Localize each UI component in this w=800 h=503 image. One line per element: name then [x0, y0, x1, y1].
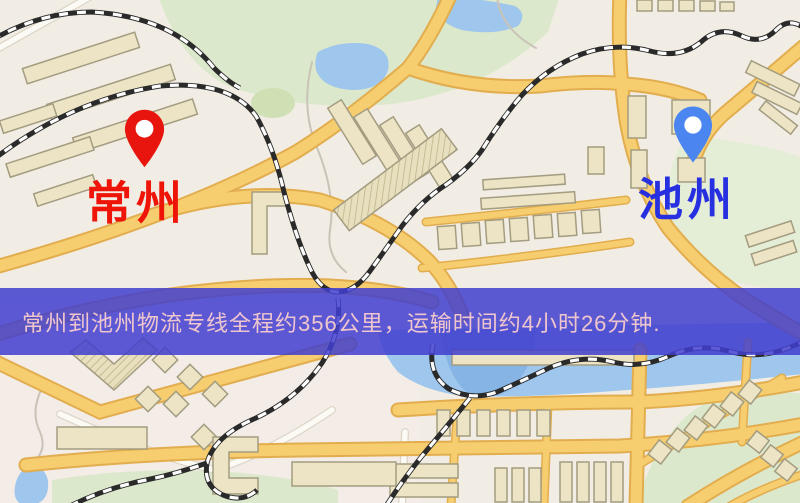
map-background: [0, 0, 800, 503]
route-info-banner: 常州到池州物流专线全程约356公里，运输时间约4小时26分钟.: [0, 288, 800, 355]
destination-city-label: 池州: [638, 178, 736, 223]
route-info-text: 常州到池州物流专线全程约356公里，运输时间约4小时26分钟.: [0, 306, 661, 338]
map-screenshot: 常州 池州 常州到池州物流专线全程约356公里，运输时间约4小时26分钟.: [0, 0, 800, 503]
origin-pin-icon[interactable]: [121, 107, 168, 170]
destination-pin-icon[interactable]: [670, 104, 716, 165]
origin-city-label: 常州: [86, 181, 186, 227]
